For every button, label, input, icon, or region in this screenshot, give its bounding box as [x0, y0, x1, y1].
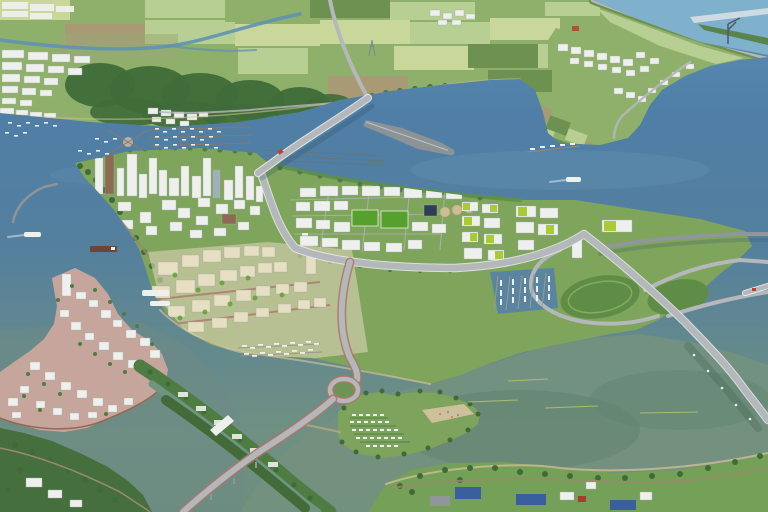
courtyard-green [178, 316, 183, 321]
sailboat [548, 294, 550, 300]
moored-boat [173, 144, 177, 146]
corner-sheds [26, 478, 42, 487]
sailboat [524, 287, 526, 293]
moored-boat [5, 132, 9, 134]
caravan [366, 414, 370, 416]
city-shore-trees [85, 169, 91, 175]
green-roof [546, 225, 554, 234]
blue-roof-shed [455, 487, 481, 499]
highrise-tower [159, 170, 167, 196]
field-patch [410, 22, 490, 44]
moored-boat [113, 138, 117, 140]
highrise-tower [127, 154, 137, 196]
highrise-tower [235, 166, 243, 198]
beige-block [298, 300, 310, 309]
beige-block [258, 263, 272, 273]
beige-block [256, 308, 269, 317]
campsite-trees [438, 390, 443, 395]
sailboat [512, 279, 514, 285]
caravan [352, 429, 356, 431]
caravan [387, 429, 391, 431]
island-trees [123, 370, 127, 374]
caravan [384, 437, 388, 439]
village-houses [598, 64, 607, 70]
moored-boat [550, 145, 555, 147]
village-houses [430, 10, 440, 16]
island-trees [122, 312, 126, 316]
sailboat [266, 346, 271, 348]
highway-bridge-piers [707, 370, 710, 373]
dev-block [362, 186, 380, 196]
city-slab-block [238, 222, 249, 230]
caravan [363, 437, 367, 439]
island-house [113, 320, 122, 327]
white-ship [566, 177, 581, 182]
caravan [373, 414, 377, 416]
caravan [380, 414, 384, 416]
sailboat [274, 343, 279, 345]
existing-city-block [2, 74, 20, 82]
caravan [373, 429, 377, 431]
beige-block [274, 262, 287, 272]
business-shed [518, 240, 534, 250]
city-slab-block [216, 204, 228, 214]
dev-block [320, 186, 338, 196]
moored-boat [208, 128, 212, 130]
island-house [71, 322, 81, 330]
beige-block [234, 312, 248, 322]
riverside-village [148, 108, 158, 114]
dike-trees [308, 496, 313, 501]
shore-trees [567, 473, 573, 479]
island-trees [22, 394, 26, 398]
beige-block [256, 286, 270, 296]
village-houses [610, 56, 620, 63]
courtyard-green [280, 293, 285, 298]
village-houses [571, 47, 581, 54]
shore-farms [626, 92, 635, 98]
island-house [88, 412, 97, 418]
caravan [378, 421, 382, 423]
existing-city-block [40, 90, 52, 96]
greenhouses [2, 2, 28, 9]
existing-city-block [68, 68, 82, 75]
island-trees [56, 298, 60, 302]
moored-boat [14, 135, 18, 137]
greenhouses [2, 11, 28, 17]
island-trees [42, 382, 46, 386]
field-patch [225, 2, 310, 22]
dev-block [296, 202, 310, 211]
village-houses [636, 52, 645, 58]
existing-city-block [28, 52, 48, 60]
shore-trees [757, 453, 763, 459]
city-slab-block [118, 202, 131, 211]
navy-building [424, 205, 437, 216]
caravan [366, 445, 370, 447]
island-trees [78, 342, 82, 346]
shore-buildings [640, 492, 652, 500]
sailboat [298, 344, 303, 346]
campsite-trees [418, 389, 423, 394]
campsite-trees [354, 450, 359, 455]
corner-trees [17, 467, 23, 473]
green-roof [486, 235, 494, 243]
dike-trees [274, 468, 279, 473]
village-houses [626, 70, 635, 76]
courtyard-green [246, 276, 251, 281]
sailboat [524, 278, 526, 284]
sailboat [314, 343, 319, 345]
island-trees [93, 352, 97, 356]
shore-trees [705, 465, 711, 471]
island-house [76, 292, 86, 299]
shore-trees [542, 471, 548, 477]
village-houses [584, 61, 593, 67]
moored-boat [209, 136, 213, 138]
island-house [77, 390, 87, 398]
island-house [53, 408, 62, 415]
city-slab-block [162, 200, 176, 210]
greenhouses [30, 4, 54, 11]
courtyard-green [253, 296, 258, 301]
sailboat [512, 297, 514, 303]
moored-boat [190, 128, 194, 130]
dike-sheds [178, 392, 188, 397]
sailboat [500, 299, 502, 305]
moored-boat [181, 131, 185, 133]
dike-sheds [196, 406, 206, 411]
dike-sheds [268, 462, 278, 467]
sailboat [292, 350, 297, 352]
red-roof-farm [572, 26, 579, 31]
sailboat [252, 355, 257, 357]
red-shed [578, 496, 586, 502]
island-house [113, 352, 123, 360]
campsite-trees [340, 440, 345, 445]
glass-tower [213, 170, 220, 198]
courtyard-green [228, 302, 233, 307]
island-house [45, 372, 55, 380]
field-patch [238, 48, 308, 74]
island-house [101, 310, 111, 318]
island-house [124, 398, 133, 405]
village-houses [584, 50, 594, 57]
moored-boat [182, 139, 186, 141]
corner-trees [112, 497, 118, 503]
city-slab-block [178, 208, 190, 218]
moored-boat [53, 125, 57, 127]
gray-shed [430, 496, 450, 506]
beige-block [182, 255, 199, 267]
caravan [359, 429, 363, 431]
island-house [70, 413, 79, 420]
corner-trees [97, 487, 103, 493]
courtyard-green [173, 273, 178, 278]
campsite-trees [402, 452, 407, 457]
moored-boat [540, 146, 545, 148]
moored-boat [164, 147, 168, 149]
caravan [356, 437, 360, 439]
sailboat [524, 296, 526, 302]
caravan [394, 429, 398, 431]
sailboat [242, 345, 247, 347]
caravan [380, 445, 384, 447]
blue-roof-shed [610, 500, 636, 510]
caravan [357, 421, 361, 423]
village-houses [570, 58, 579, 64]
loop-bridge-pier [255, 462, 257, 468]
moored-boat [173, 136, 177, 138]
caravan [394, 445, 398, 447]
shore-trees [409, 489, 415, 495]
moored-boat [26, 122, 30, 124]
greenhouses [30, 13, 52, 19]
sailboat [268, 354, 273, 356]
sailboat [512, 288, 514, 294]
dev-block [334, 222, 350, 232]
beige-block [314, 298, 326, 307]
shore-farms [614, 88, 623, 94]
sailboat [258, 344, 263, 346]
moored-boat [191, 144, 195, 146]
field-patch [394, 46, 474, 70]
highrise-tower [192, 176, 201, 198]
moored-boat [182, 147, 186, 149]
dev-block [342, 186, 358, 195]
island-tower [62, 274, 71, 296]
moored-boat [560, 144, 565, 146]
shore-trees [492, 465, 498, 471]
riverside-village [180, 121, 189, 126]
highrise-tower [95, 158, 103, 194]
river-cruise-barge [142, 290, 169, 296]
beige-block [294, 282, 307, 292]
dike-sheds [232, 434, 242, 439]
dev-block [300, 188, 316, 197]
small-boat [302, 233, 308, 236]
beach-people [451, 416, 453, 418]
island-house [20, 386, 29, 393]
caravan [371, 421, 375, 423]
island-house [99, 342, 109, 350]
city-slab-block [214, 228, 226, 236]
dike-trees [292, 483, 297, 488]
moored-boat [8, 122, 12, 124]
existing-city-block [20, 100, 32, 106]
highrise-tower [169, 178, 179, 196]
sailboat [284, 353, 289, 355]
greenhouses [56, 6, 74, 12]
moored-boat [95, 138, 99, 140]
beige-block [240, 266, 255, 277]
sports-pitch [352, 210, 378, 226]
sailboat [500, 290, 502, 296]
caravan [387, 445, 391, 447]
highway-bridge-piers [693, 354, 696, 357]
corner-sheds [48, 490, 62, 498]
caravan [385, 421, 389, 423]
field-patch [468, 44, 538, 68]
village-houses [443, 13, 452, 19]
moored-boat [163, 131, 167, 133]
island-trees [135, 324, 139, 328]
campsite-trees [454, 396, 459, 401]
village-houses [452, 20, 461, 25]
sailboat [300, 352, 305, 354]
highrise-tower [149, 158, 157, 194]
sailboat [250, 347, 255, 349]
island-house [89, 300, 98, 307]
beach-people [439, 413, 441, 415]
beige-block [198, 274, 215, 286]
dike-trees [148, 370, 153, 375]
existing-city-block [2, 98, 16, 104]
island-trees [58, 392, 62, 396]
moored-boat [205, 144, 209, 146]
moored-boat [155, 128, 159, 130]
existing-city-block [48, 66, 64, 73]
shore-trees [517, 469, 523, 475]
existing-city-block [52, 54, 70, 62]
sailboat [308, 349, 313, 351]
shore-trees [622, 475, 628, 481]
island-house [36, 401, 45, 408]
caravan [398, 437, 402, 439]
caravan [366, 429, 370, 431]
caravan [350, 421, 354, 423]
moored-boat [23, 132, 27, 134]
corner-sheds [70, 500, 82, 507]
dev-block [334, 201, 348, 210]
highway-bridge-piers [721, 387, 724, 390]
blue-roof-shed [516, 494, 546, 505]
campsite-trees [380, 389, 385, 394]
dev-block [314, 201, 330, 211]
highrise-tower [181, 166, 189, 196]
moored-boat [87, 153, 91, 155]
island-house [12, 412, 21, 418]
beige-block [176, 280, 195, 293]
caravan [352, 414, 356, 416]
beige-block [244, 246, 259, 256]
river-glint [410, 150, 710, 190]
dev-block [316, 220, 330, 229]
riverside-village [166, 119, 175, 124]
village-houses [623, 59, 633, 66]
business-shed [484, 218, 500, 228]
existing-city-block [16, 110, 28, 115]
dev-block [296, 218, 312, 228]
beach-people [447, 411, 449, 413]
dev-block [386, 243, 402, 252]
village-houses [466, 14, 475, 19]
moored-boat [17, 125, 21, 127]
green-roof [470, 233, 477, 241]
caravan [380, 429, 384, 431]
storage-silo [452, 205, 462, 215]
existing-city-block [24, 76, 40, 83]
field-patch [490, 18, 560, 40]
highrise-tower [139, 174, 147, 198]
sailboat [500, 280, 502, 286]
dev-block [408, 240, 422, 249]
highrise-tower [246, 176, 254, 200]
campsite-trees [396, 392, 401, 397]
existing-city-block [2, 86, 18, 93]
existing-city-block [26, 64, 44, 72]
city-slab-block [196, 216, 208, 225]
green-roof [490, 205, 497, 212]
dev-block [322, 238, 338, 247]
storage-silo [440, 207, 450, 217]
shore-trees [677, 471, 683, 477]
green-roof [464, 217, 472, 225]
sailboat [548, 285, 550, 291]
pier-tip [448, 149, 455, 156]
dev-block [300, 236, 318, 246]
shore-buildings [560, 492, 574, 500]
village-houses [650, 58, 659, 64]
city-slab-block [250, 206, 260, 215]
campsite-trees [476, 412, 481, 417]
moored-boat [172, 128, 176, 130]
dev-shore-trees [358, 182, 363, 187]
courtyard-green [203, 310, 208, 315]
island-house [93, 398, 103, 406]
sailboat [536, 277, 538, 283]
dev-block [432, 224, 446, 233]
dev-block [412, 222, 428, 231]
corner-trees [12, 442, 18, 448]
highrise-tower [224, 180, 233, 200]
courtyard-green [220, 281, 225, 286]
moored-boat [570, 143, 575, 145]
existing-city-block [2, 62, 22, 70]
shore-trees [732, 459, 738, 465]
moored-boat [199, 131, 203, 133]
city-slab-block [190, 230, 202, 238]
existing-city-block [44, 78, 58, 85]
highway-bridge-piers [749, 418, 752, 421]
city-slab-block [234, 200, 245, 209]
moored-boat [200, 139, 204, 141]
island-trees [70, 284, 74, 288]
field-patch [145, 0, 225, 18]
sailboat [548, 276, 550, 282]
moored-boat [164, 139, 168, 141]
moored-boat [155, 144, 159, 146]
brick-midrise [222, 214, 236, 224]
dike-trees [166, 382, 171, 387]
city-shore-trees [109, 197, 115, 203]
island-trees [93, 288, 97, 292]
moored-boat [217, 131, 221, 133]
east-stub-red-marker [752, 288, 756, 291]
green-roof [463, 203, 470, 210]
city-slab-block [170, 222, 182, 231]
campsite-trees [426, 446, 431, 451]
sailboat [536, 295, 538, 301]
loop-bridge-pier [233, 478, 235, 484]
sailboat [536, 286, 538, 292]
dev-block [342, 240, 360, 250]
island-trees [108, 300, 112, 304]
island-trees [104, 412, 108, 416]
island-house [61, 382, 71, 390]
village-houses [612, 67, 621, 73]
courtyard-green [196, 288, 201, 293]
